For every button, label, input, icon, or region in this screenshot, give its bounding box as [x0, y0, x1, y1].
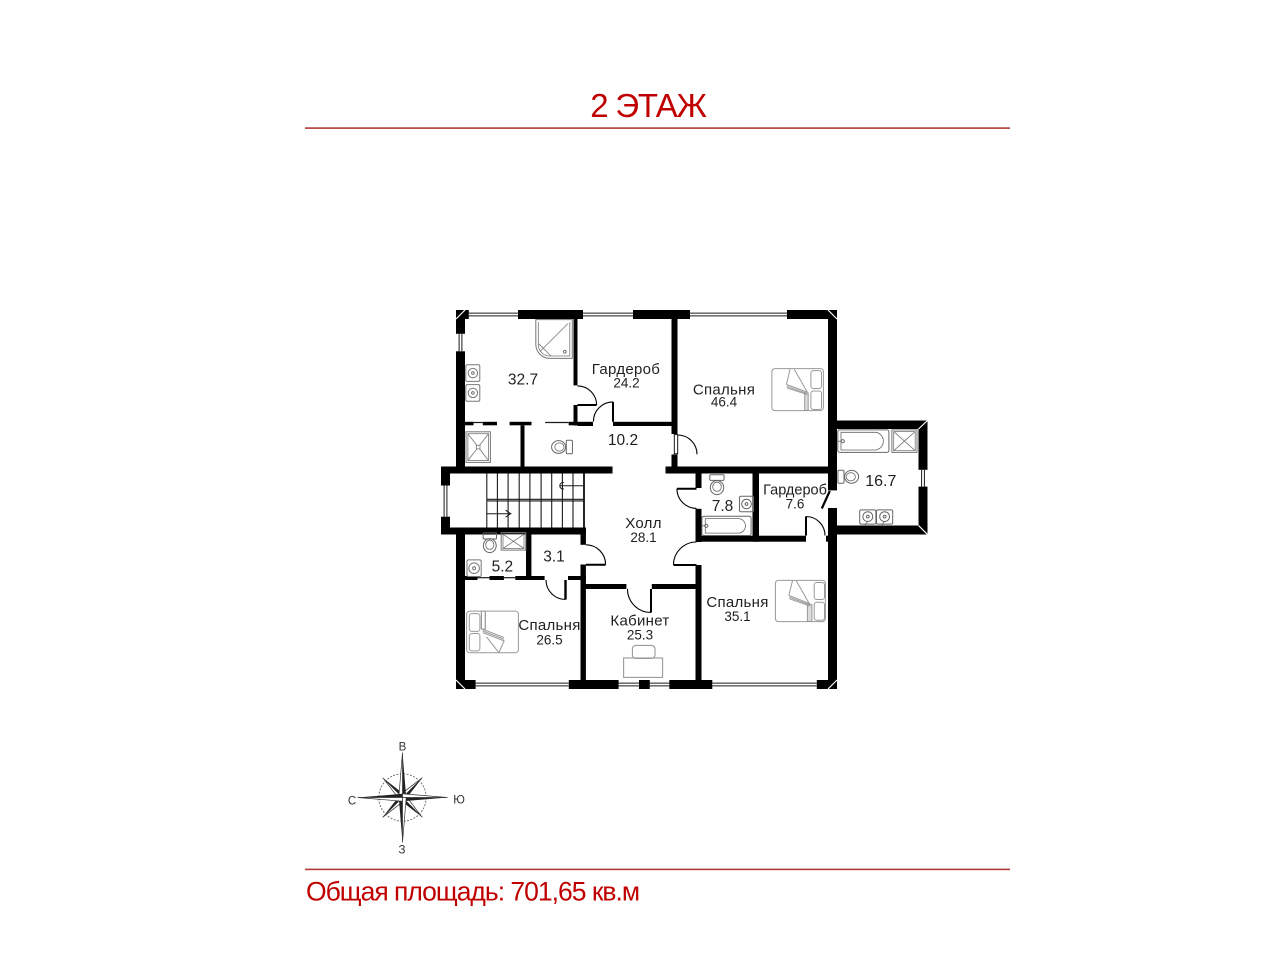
svg-text:46.4: 46.4: [711, 394, 738, 409]
svg-text:7.6: 7.6: [786, 497, 805, 512]
svg-text:Общая площадь: 701,65 кв.м: Общая площадь: 701,65 кв.м: [306, 877, 639, 907]
svg-text:В: В: [399, 742, 407, 754]
svg-text:35.1: 35.1: [724, 609, 750, 624]
svg-text:26.5: 26.5: [536, 632, 562, 647]
svg-text:24.2: 24.2: [613, 375, 639, 390]
svg-text:16.7: 16.7: [865, 473, 896, 490]
svg-text:10.2: 10.2: [608, 432, 638, 449]
svg-text:7.8: 7.8: [712, 498, 734, 515]
svg-text:2 ЭТАЖ: 2 ЭТАЖ: [590, 87, 707, 124]
svg-text:3.1: 3.1: [543, 549, 565, 566]
svg-text:Ю: Ю: [453, 795, 465, 807]
svg-text:5.2: 5.2: [492, 559, 514, 576]
svg-text:28.1: 28.1: [630, 530, 656, 545]
svg-text:С: С: [348, 795, 356, 807]
svg-text:25.3: 25.3: [627, 627, 653, 642]
svg-text:З: З: [399, 845, 406, 857]
svg-text:32.7: 32.7: [508, 372, 538, 389]
